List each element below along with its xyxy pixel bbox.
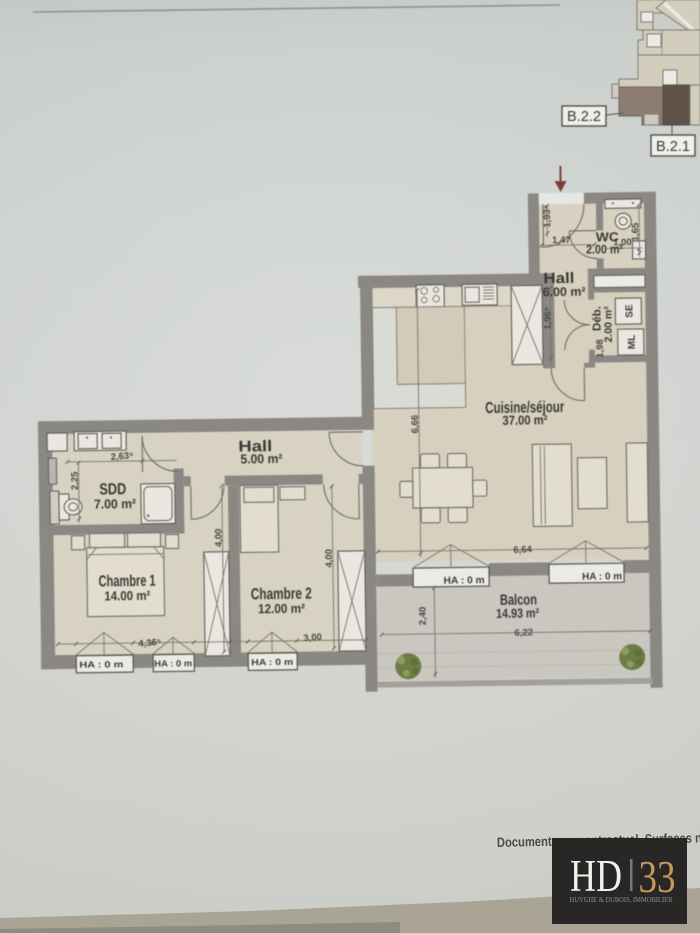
svg-text:HD: HD xyxy=(570,851,622,901)
svg-text:HUYGHE & DUBOIS, IMMOBILIER: HUYGHE & DUBOIS, IMMOBILIER xyxy=(570,895,673,904)
